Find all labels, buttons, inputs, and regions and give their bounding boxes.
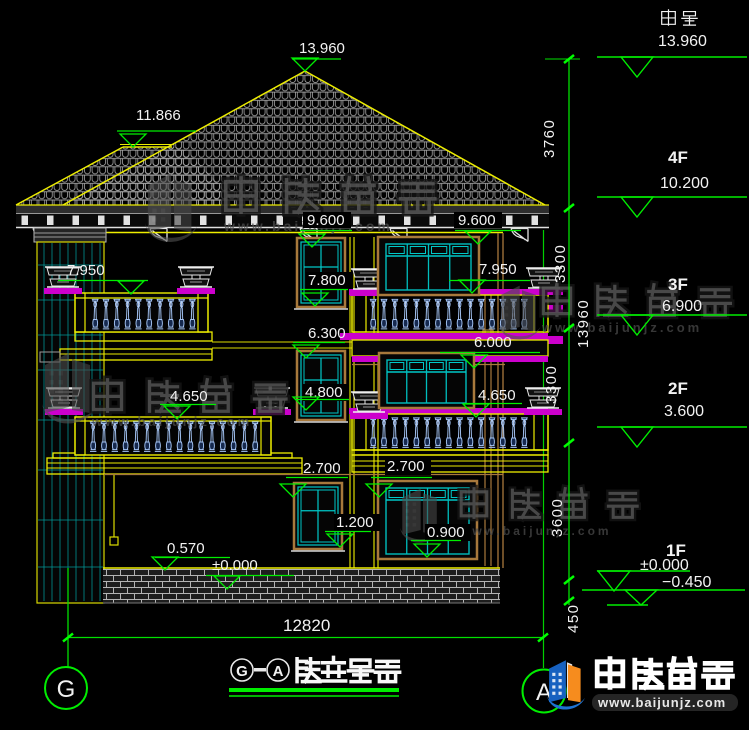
svg-text:9.600: 9.600	[458, 212, 496, 229]
svg-text:450: 450	[565, 603, 582, 633]
svg-text:4.650: 4.650	[478, 387, 516, 404]
svg-text:7.950: 7.950	[479, 261, 517, 278]
svg-text:0.570: 0.570	[167, 540, 205, 557]
svg-text:G: G	[236, 663, 248, 680]
svg-text:−0.450: −0.450	[662, 574, 711, 591]
svg-text:2.700: 2.700	[387, 458, 425, 475]
svg-text:13960: 13960	[575, 299, 592, 348]
svg-text:7.950: 7.950	[67, 262, 105, 279]
svg-text:4.800: 4.800	[305, 384, 343, 401]
svg-text:1.200: 1.200	[336, 514, 374, 531]
svg-text:2.700: 2.700	[303, 460, 341, 477]
svg-text:2F: 2F	[668, 379, 688, 398]
svg-text:www.baijunjz.com: www.baijunjz.com	[459, 524, 612, 538]
svg-text:±0.000: ±0.000	[212, 557, 258, 574]
svg-text:12820: 12820	[283, 616, 330, 635]
svg-text:3.600: 3.600	[664, 403, 704, 420]
svg-text:www.baijunjz.com: www.baijunjz.com	[597, 695, 726, 710]
svg-text:0.900: 0.900	[427, 524, 465, 541]
svg-text:4.650: 4.650	[170, 388, 208, 405]
svg-text:13.960: 13.960	[658, 33, 707, 50]
svg-text:7.800: 7.800	[308, 272, 346, 289]
svg-text:3300: 3300	[543, 365, 560, 404]
svg-text:9.600: 9.600	[307, 212, 345, 229]
svg-text:4F: 4F	[668, 148, 688, 167]
svg-text:3F: 3F	[668, 275, 688, 294]
svg-text:6.900: 6.900	[662, 298, 702, 315]
svg-text:6.300: 6.300	[308, 325, 346, 342]
svg-text:6.000: 6.000	[474, 334, 512, 351]
svg-text:11.866: 11.866	[136, 107, 181, 124]
svg-text:10.200: 10.200	[660, 175, 709, 192]
svg-text:A: A	[273, 663, 284, 680]
svg-text:3760: 3760	[541, 119, 558, 158]
svg-text:www.baijunjz.com: www.baijunjz.com	[91, 414, 252, 429]
svg-text:3300: 3300	[552, 244, 569, 283]
svg-text:3600: 3600	[549, 498, 566, 537]
svg-text:G: G	[57, 676, 76, 703]
svg-text:www.baijunjz.com: www.baijunjz.com	[541, 320, 702, 335]
svg-text:13.960: 13.960	[299, 40, 345, 57]
